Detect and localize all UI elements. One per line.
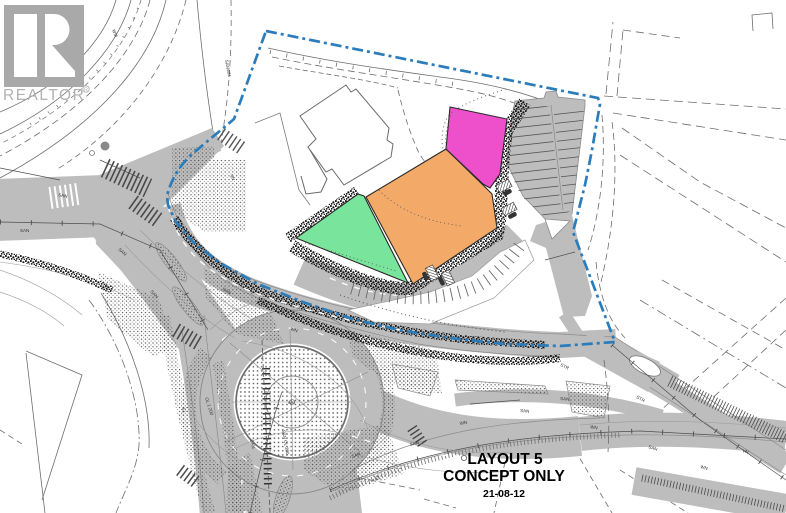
svg-text:R: R xyxy=(84,88,88,94)
svg-text:WN: WN xyxy=(288,400,295,405)
svg-text:21-08-12: 21-08-12 xyxy=(483,488,525,500)
svg-text:SAN: SAN xyxy=(20,228,29,233)
svg-text:CONCEPT ONLY: CONCEPT ONLY xyxy=(443,468,565,485)
svg-text:SAN: SAN xyxy=(520,408,530,414)
svg-text:LAYOUT 5: LAYOUT 5 xyxy=(467,451,543,468)
svg-text:SAN: SAN xyxy=(560,396,570,402)
svg-text:REALTOR: REALTOR xyxy=(3,87,85,104)
